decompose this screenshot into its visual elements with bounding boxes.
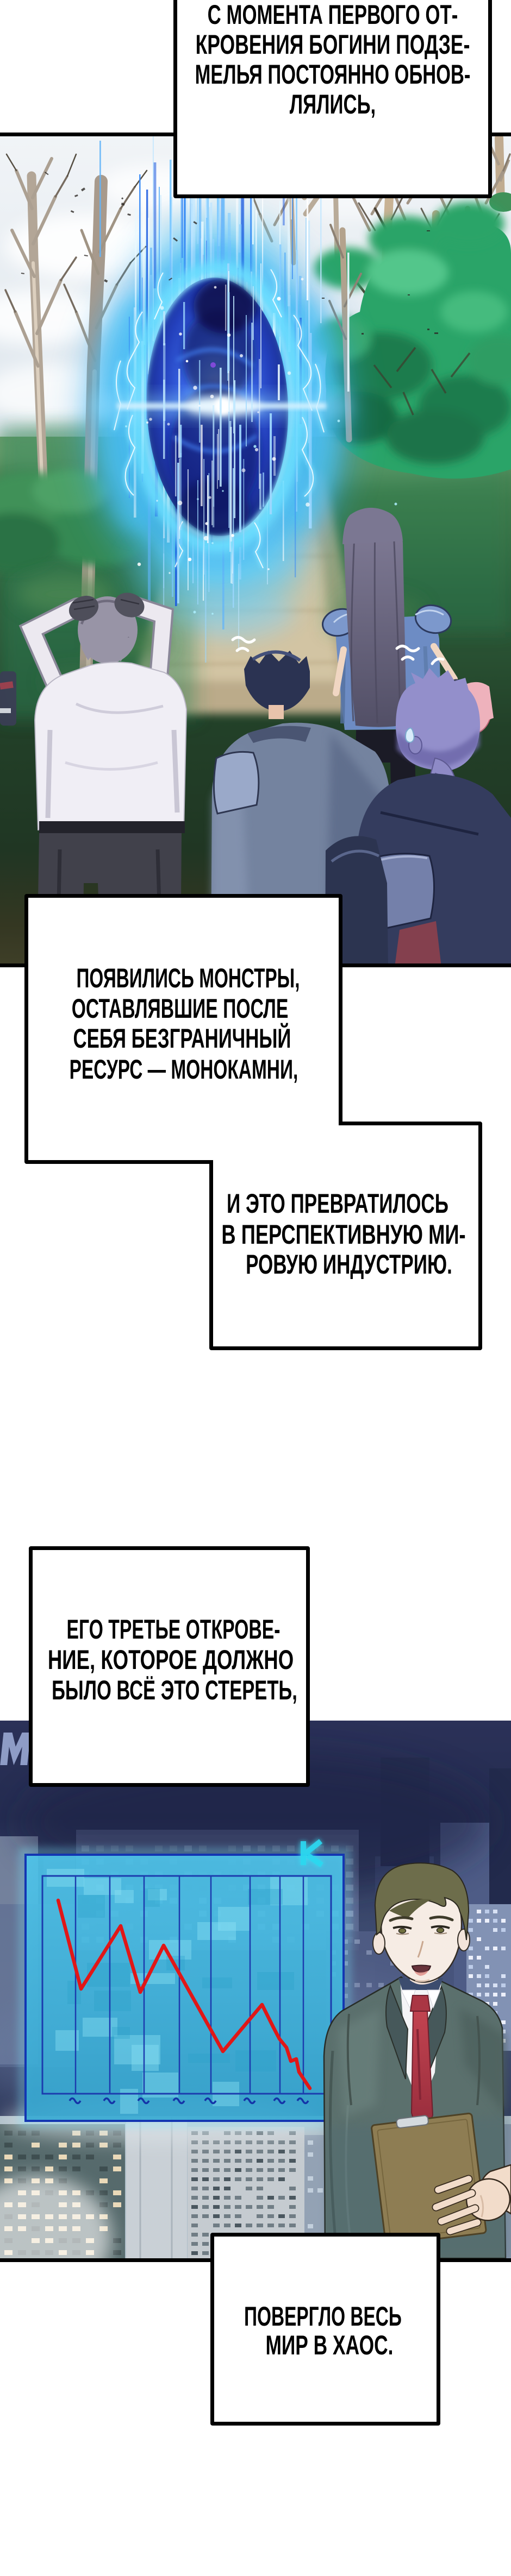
svg-text:В ПЕРСПЕКТИВНУЮ МИ-: В ПЕРСПЕКТИВНУЮ МИ-: [221, 1219, 465, 1250]
svg-text:БЫЛО ВСЁ ЭТО СТЕРЕТЬ,: БЫЛО ВСЁ ЭТО СТЕРЕТЬ,: [52, 1676, 297, 1706]
svg-text:ЛЯЛИСЬ,: ЛЯЛИСЬ,: [290, 90, 376, 120]
svg-text:ОСТАВЛЯВШИЕ ПОСЛЕ: ОСТАВЛЯВШИЕ ПОСЛЕ: [72, 993, 289, 1024]
svg-text:С МОМЕНТА ПЕРВОГО ОТ-: С МОМЕНТА ПЕРВОГО ОТ-: [208, 0, 458, 30]
svg-text:И ЭТО ПРЕВРАТИЛОСЬ: И ЭТО ПРЕВРАТИЛОСЬ: [227, 1189, 448, 1219]
svg-text:МИР В ХАОС.: МИР В ХАОС.: [265, 2331, 393, 2360]
svg-text:РОВУЮ ИНДУСТРИЮ.: РОВУЮ ИНДУСТРИЮ.: [246, 1250, 452, 1280]
svg-text:МЕЛЬЯ ПОСТОЯННО ОБНОВ-: МЕЛЬЯ ПОСТОЯННО ОБНОВ-: [195, 60, 471, 90]
svg-text:ПОВЕРГЛО ВЕСЬ: ПОВЕРГЛО ВЕСЬ: [244, 2302, 402, 2332]
svg-text:НИЕ, КОТОРОЕ ДОЛЖНО: НИЕ, КОТОРОЕ ДОЛЖНО: [48, 1645, 294, 1675]
svg-text:РЕСУРС — МОНОКАМНИ,: РЕСУРС — МОНОКАМНИ,: [70, 1054, 298, 1085]
svg-text:СЕБЯ БЕЗГРАНИЧНЫЙ: СЕБЯ БЕЗГРАНИЧНЫЙ: [73, 1023, 291, 1054]
svg-text:ПОЯВИЛИСЬ МОНСТРЫ,: ПОЯВИЛИСЬ МОНСТРЫ,: [76, 963, 300, 993]
svg-text:КРОВЕНИЯ БОГИНИ ПОДЗЕ-: КРОВЕНИЯ БОГИНИ ПОДЗЕ-: [196, 30, 470, 60]
svg-text:ЕГО ТРЕТЬЕ ОТКРОВЕ-: ЕГО ТРЕТЬЕ ОТКРОВЕ-: [67, 1614, 281, 1645]
